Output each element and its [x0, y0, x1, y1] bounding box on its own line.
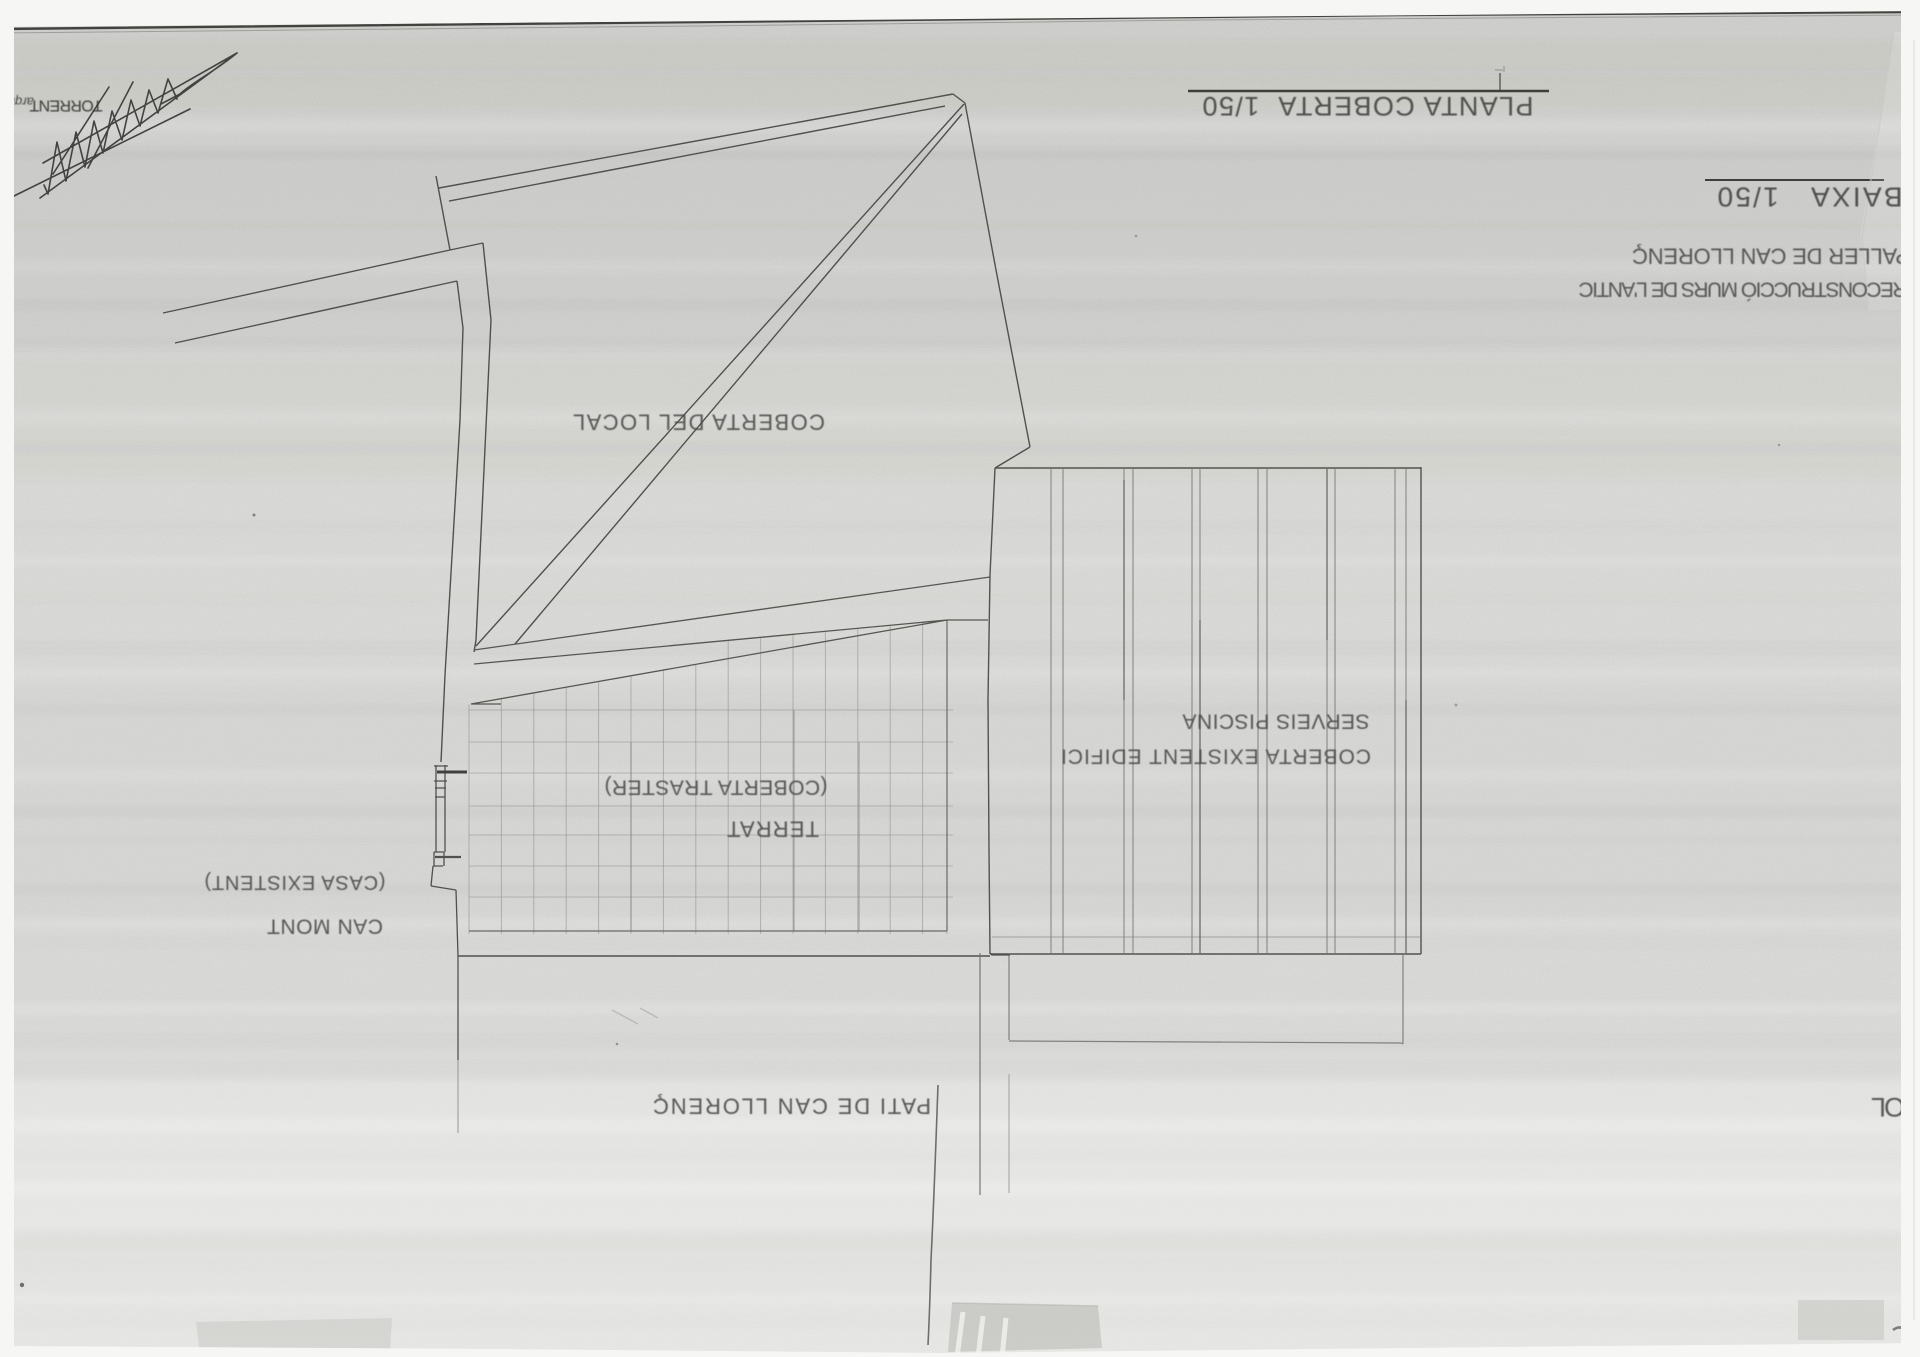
svg-text:COBERTA EXISTENT EDIFICI: COBERTA EXISTENT EDIFICI [1061, 745, 1371, 768]
svg-text:SERVEIS PISCINA: SERVEIS PISCINA [1183, 710, 1370, 733]
svg-text:TERRAT: TERRAT [727, 817, 819, 842]
svg-text:PALLER DE CAN LLORENÇ: PALLER DE CAN LLORENÇ [1632, 244, 1910, 269]
svg-text:PLANTA COBERTA 1/50: PLANTA COBERTA 1/50 [1203, 91, 1534, 121]
svg-text:COBERTA DEL LOCAL: COBERTA DEL LOCAL [573, 410, 825, 435]
svg-text:PATI DE CAN LLORENÇ: PATI DE CAN LLORENÇ [653, 1094, 931, 1119]
svg-text:CAN MONT: CAN MONT [267, 915, 383, 938]
svg-text:(COBERTA TRASTER): (COBERTA TRASTER) [605, 776, 828, 799]
svg-text:TORRENT: TORRENT [29, 97, 102, 114]
svg-text:(CASA EXISTENT): (CASA EXISTENT) [205, 871, 386, 893]
svg-text:OL: OL [1871, 1092, 1905, 1122]
svg-text:RECONSTRUCCIÓ MURS DE L'ANTIC: RECONSTRUCCIÓ MURS DE L'ANTIC [1579, 278, 1908, 301]
